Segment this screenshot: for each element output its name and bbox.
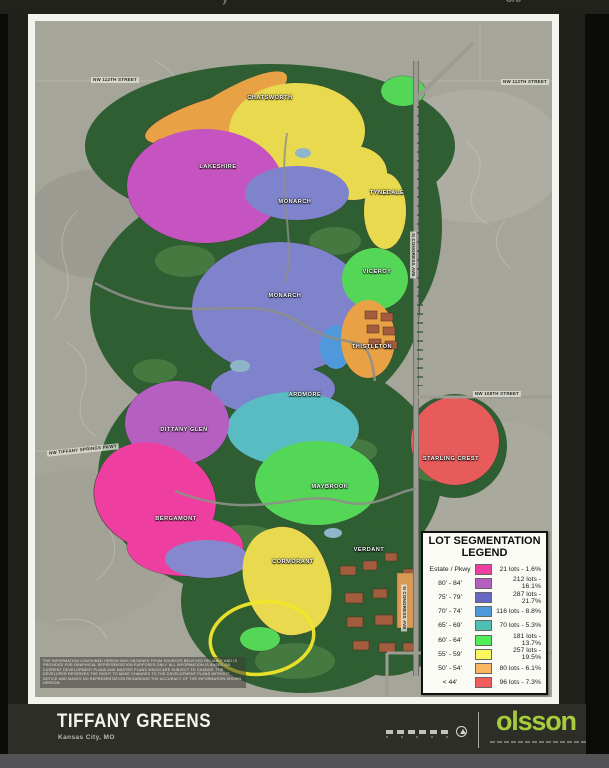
legend-count-label: 96 lots - 7.3%	[495, 679, 541, 686]
neighborhood-label: STARLING CREST	[423, 456, 479, 462]
legend-title-line2: LEGEND	[462, 547, 508, 559]
right-black-margin	[585, 0, 609, 754]
legend-title-line1: LOT SEGMENTATION	[428, 535, 540, 547]
street-label: NW 112TH STREET	[501, 79, 549, 85]
legend-row: 65' - 69'70 lots - 5.3%	[423, 619, 546, 633]
neighborhood-label: MAYBROOK	[312, 484, 349, 490]
legend-size-label: < 44'	[428, 679, 472, 686]
legend-color-swatch	[475, 592, 492, 603]
map-poster: CHATSWORTHLAKESHIREMONARCHTYNEDALEMONARC…	[8, 14, 585, 754]
legend-size-label: 75' - 79'	[428, 594, 472, 601]
scale-bar-ticks	[386, 736, 448, 738]
map-disclaimer-text: The information contained herein was obt…	[40, 657, 246, 688]
neighborhood-label: BERGAMONT	[155, 516, 196, 522]
legend-count-label: 181 lots - 13.7%	[495, 633, 541, 647]
neighborhood-label: TYNEDALE	[370, 190, 404, 196]
legend-count-label: 21 lots - 1.6%	[495, 566, 541, 573]
neighborhood-label: ARDMORE	[289, 392, 322, 398]
olsson-logo: olsson	[496, 706, 576, 737]
street-label: N CONGRESS AVE	[410, 231, 416, 278]
legend-size-label: 55' - 59'	[428, 651, 472, 658]
legend-size-label: 60' - 64'	[428, 637, 472, 644]
legend-row: 75' - 79'287 lots - 21.7%	[423, 590, 546, 604]
lot-segmentation-legend: LOT SEGMENTATION LEGEND Estate / Pkwy21 …	[421, 531, 548, 695]
legend-count-label: 212 lots - 16.1%	[495, 576, 541, 590]
legend-row: 80' - 84'212 lots - 16.1%	[423, 576, 546, 590]
title-block: TIFFANY GREENS Kansas City, MO olsson	[8, 704, 586, 754]
legend-row: 60' - 64'181 lots - 13.7%	[423, 633, 546, 647]
screenshot-root: y––3/5	[0, 0, 609, 768]
legend-count-label: 70 lots - 5.3%	[495, 622, 541, 629]
legend-count-label: 257 lots - 19.5%	[495, 647, 541, 661]
legend-row: 50' - 54'80 lots - 6.1%	[423, 661, 546, 675]
cropped-top-text-bar: y––3/5	[0, 0, 609, 14]
legend-size-label: Estate / Pkwy	[428, 566, 472, 573]
legend-size-label: 50' - 54'	[428, 665, 472, 672]
legend-row: < 44'96 lots - 7.3%	[423, 676, 546, 690]
project-location: Kansas City, MO	[58, 734, 115, 741]
neighborhood-label: MONARCH	[269, 293, 302, 299]
neighborhood-label: THISTLETON	[352, 344, 392, 350]
legend-rows: Estate / Pkwy21 lots - 1.6%80' - 84'212 …	[423, 562, 546, 690]
map-white-frame: CHATSWORTHLAKESHIREMONARCHTYNEDALEMONARC…	[28, 14, 559, 704]
cropped-text-fragment: –	[325, 0, 331, 5]
bottom-gray-strip	[0, 754, 609, 768]
legend-count-label: 287 lots - 21.7%	[495, 591, 541, 605]
neighborhood-label: VERDANT	[354, 547, 385, 553]
neighborhood-label: LAKESHIRE	[199, 164, 236, 170]
cropped-text-fragment: –	[424, 0, 430, 5]
title-block-divider	[478, 712, 479, 748]
legend-color-swatch	[475, 635, 492, 646]
north-arrow-icon	[456, 726, 467, 737]
project-name: TIFFANY GREENS	[57, 710, 211, 732]
street-label: N CONGRESS AVE	[401, 584, 407, 631]
legend-color-swatch	[475, 677, 492, 688]
neighborhood-label: CHATSWORTH	[247, 95, 292, 101]
legend-color-swatch	[475, 606, 492, 617]
legend-color-swatch	[475, 663, 492, 674]
neighborhood-label: DITTANY GLEN	[160, 427, 207, 433]
street-label: NW 108TH STREET	[473, 391, 521, 397]
legend-size-label: 65' - 69'	[428, 622, 472, 629]
scale-bar-icon	[386, 730, 448, 734]
legend-color-swatch	[475, 578, 492, 589]
legend-count-label: 80 lots - 6.1%	[495, 665, 541, 672]
legend-row: Estate / Pkwy21 lots - 1.6%	[423, 562, 546, 576]
legend-title: LOT SEGMENTATION LEGEND	[423, 536, 546, 559]
neighborhood-label: MONARCH	[279, 199, 312, 205]
neighborhood-label: CORMORANT	[272, 559, 314, 565]
address-fine-print	[490, 741, 586, 743]
cropped-text-fragment: y	[222, 0, 228, 5]
neighborhood-label: VICEROY	[363, 269, 392, 275]
street-label: NW 112TH STREET	[91, 77, 139, 83]
legend-color-swatch	[475, 564, 492, 575]
aerial-site-map: CHATSWORTHLAKESHIREMONARCHTYNEDALEMONARC…	[35, 21, 552, 697]
legend-count-label: 116 lots - 8.8%	[495, 608, 541, 615]
legend-row: 55' - 59'257 lots - 19.5%	[423, 647, 546, 661]
legend-color-swatch	[475, 620, 492, 631]
legend-size-label: 70' - 74'	[428, 608, 472, 615]
left-black-margin	[0, 0, 8, 754]
legend-row: 70' - 74'116 lots - 8.8%	[423, 605, 546, 619]
cropped-text-fragment: 3/5	[506, 0, 521, 5]
legend-color-swatch	[475, 649, 492, 660]
legend-size-label: 80' - 84'	[428, 580, 472, 587]
